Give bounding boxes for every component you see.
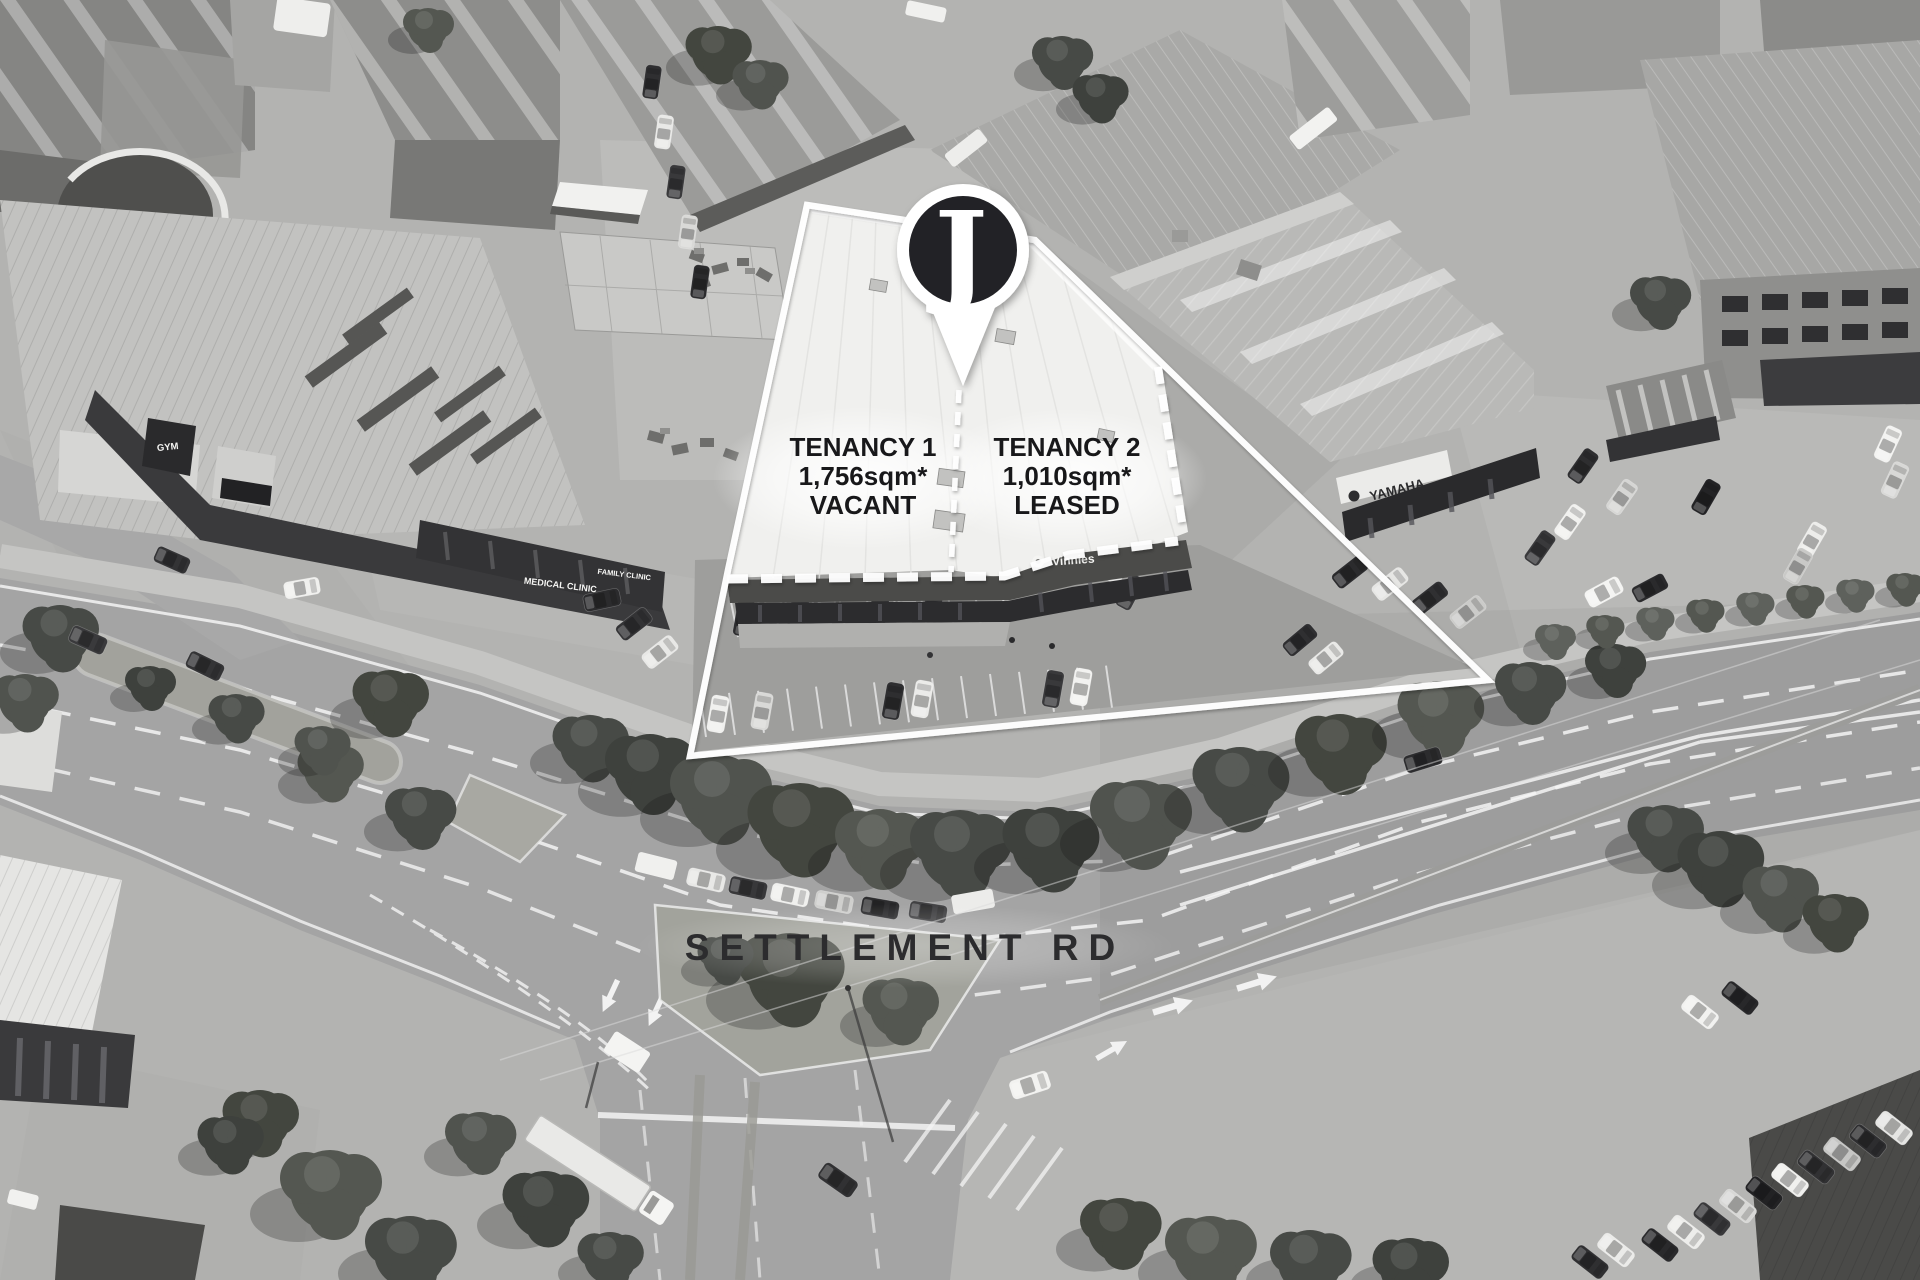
gym-sign: GYM bbox=[156, 441, 179, 454]
tenancy-2-label: TENANCY 2 1,010sqm* LEASED bbox=[994, 432, 1141, 520]
tenancy-2-status: LEASED bbox=[1014, 490, 1119, 520]
aerial-scene: GYM MEDICAL CLINIC FAMILY CLINIC bbox=[0, 0, 1920, 1280]
tenancy-1-area: 1,756sqm* bbox=[799, 461, 929, 491]
aerial-site-photo: GYM MEDICAL CLINIC FAMILY CLINIC bbox=[0, 0, 1920, 1280]
tenancy-1-status: VACANT bbox=[810, 490, 917, 520]
pin-letter: J bbox=[926, 188, 988, 319]
tenancy-2-area: 1,010sqm* bbox=[1003, 461, 1133, 491]
tenancy-2-title: TENANCY 2 bbox=[994, 432, 1141, 462]
tenancy-1-title: TENANCY 1 bbox=[790, 432, 937, 462]
settlement-rd-label: SETTLEMENT RD bbox=[685, 927, 1125, 968]
road-name: SETTLEMENT RD bbox=[635, 904, 1175, 988]
tenancy-1-label: TENANCY 1 1,756sqm* VACANT bbox=[790, 432, 937, 520]
